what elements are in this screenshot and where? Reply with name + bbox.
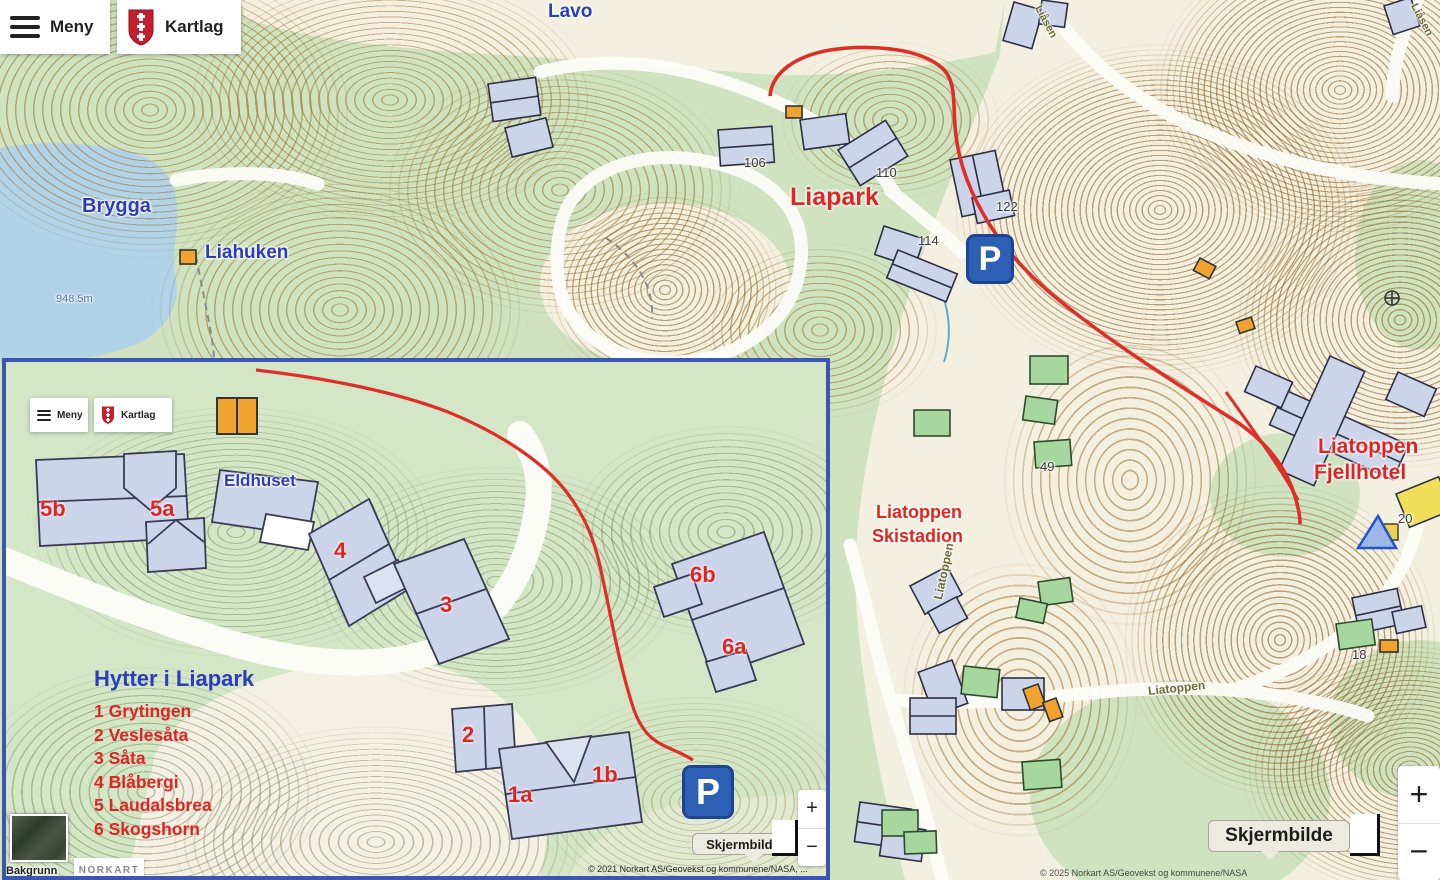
place-label-lavo: Lavo	[548, 2, 592, 22]
inset-screenshot-frame-box	[772, 820, 798, 856]
house-number: 20	[1398, 512, 1412, 526]
cabin-marker: 3	[440, 592, 452, 618]
place-label-brygga: Brygga	[82, 196, 151, 217]
map-application: Lavo Brygga Liahuken 948.5m Liapark Liat…	[0, 0, 1440, 880]
layers-button[interactable]: Kartlag	[117, 0, 241, 54]
inset-copyright: © 2021 Norkart AS/Geovekst og kommunene/…	[588, 864, 808, 874]
poi-label-fjellhotel-1: Liatoppen	[1318, 436, 1418, 458]
house-number: 49	[1040, 460, 1054, 474]
house-number: 18	[1352, 648, 1366, 662]
partner-logo-blue	[742, 876, 798, 880]
layers-button-label: Kartlag	[165, 17, 224, 37]
inset-menu-label: Meny	[57, 410, 83, 421]
legend-item: 3 Såta	[94, 747, 254, 771]
poi-label-fjellhotel-2: Fjellhotel	[1314, 462, 1406, 484]
cabin-legend: Hytter i Liapark 1 Grytingen 2 Veslesåta…	[94, 666, 254, 841]
zoom-in-button[interactable]: +	[1398, 766, 1440, 823]
screenshot-frame-box	[1350, 814, 1380, 856]
background-layer-thumbnail[interactable]	[10, 814, 68, 862]
place-label-eldhuset: Eldhuset	[224, 472, 296, 490]
legend-item: 1 Grytingen	[94, 700, 254, 724]
zoom-control: + −	[1398, 766, 1440, 880]
warning-triangle-icon	[1358, 516, 1398, 548]
lake-elevation-label: 948.5m	[56, 294, 93, 306]
legend-item: 4 Blåbergi	[94, 771, 254, 795]
hamburger-icon	[10, 11, 40, 43]
background-thumb-label: Bakgrunn	[6, 866, 57, 878]
cabin-marker: 1a	[508, 782, 532, 808]
municipality-shield-icon	[127, 8, 155, 46]
partner-logo-red	[654, 876, 718, 880]
legend-item: 6 Skogshorn	[94, 818, 254, 842]
poi-label-liapark: Liapark	[790, 184, 879, 210]
place-label-liahuken: Liahuken	[205, 243, 288, 263]
zoom-out-button[interactable]: −	[1398, 823, 1440, 880]
cabin-marker: 5b	[40, 496, 66, 522]
menu-button-label: Meny	[50, 17, 93, 37]
screenshot-button[interactable]: Skjermbilde	[1208, 820, 1350, 852]
inset-layers-label: Kartlag	[121, 410, 155, 421]
map-copyright: © 2025 Norkart AS/Geovekst og kommunene/…	[1040, 868, 1247, 878]
house-number: 122	[996, 200, 1018, 214]
inset-map[interactable]: 5b 5a 4 3 2 1a 1b 6b 6a Eldhuset Hytter …	[2, 358, 830, 880]
zoom-out-label: −	[1410, 833, 1429, 870]
municipality-shield-icon	[101, 405, 115, 425]
legend-item: 2 Veslesåta	[94, 724, 254, 748]
house-number: 114	[918, 234, 939, 248]
cabin-marker: 2	[462, 722, 474, 748]
legend-item: 5 Laudalsbrea	[94, 794, 254, 818]
cabin-marker: 5a	[150, 496, 174, 522]
poi-label-skistadion-1: Liatoppen	[876, 503, 962, 522]
zoom-in-label: +	[806, 797, 818, 820]
house-number: 106	[744, 156, 766, 170]
zoom-out-label: −	[806, 836, 818, 859]
inset-layers-button[interactable]: Kartlag	[94, 398, 172, 432]
zoom-in-label: +	[1410, 776, 1429, 813]
inset-parking-icon: P	[682, 765, 734, 819]
cabin-marker: 6a	[722, 634, 746, 660]
cabin-marker: 6b	[690, 562, 716, 588]
inset-zoom-in-button[interactable]: +	[798, 790, 826, 828]
inset-zoom-control: + −	[798, 790, 826, 866]
inset-menu-button[interactable]: Meny	[30, 398, 88, 432]
menu-button[interactable]: Meny	[0, 0, 110, 54]
hamburger-icon	[37, 407, 51, 423]
legend-title: Hytter i Liapark	[94, 666, 254, 692]
inset-orange-building	[217, 398, 257, 434]
inset-zoom-out-button[interactable]: −	[798, 828, 826, 867]
parking-letter: P	[979, 240, 1002, 279]
screenshot-button-label: Skjermbilde	[706, 837, 780, 852]
norkart-attribution-button[interactable]: NORKART	[74, 858, 144, 880]
cabin-marker: 4	[334, 538, 346, 564]
norkart-label: NORKART	[79, 865, 140, 876]
parking-icon: P	[966, 234, 1014, 284]
survey-marker-icon	[1385, 291, 1399, 305]
screenshot-button-label: Skjermbilde	[1225, 825, 1333, 847]
parking-letter: P	[696, 771, 720, 813]
cabin-marker: 1b	[592, 762, 618, 788]
house-number: 110	[876, 166, 897, 180]
